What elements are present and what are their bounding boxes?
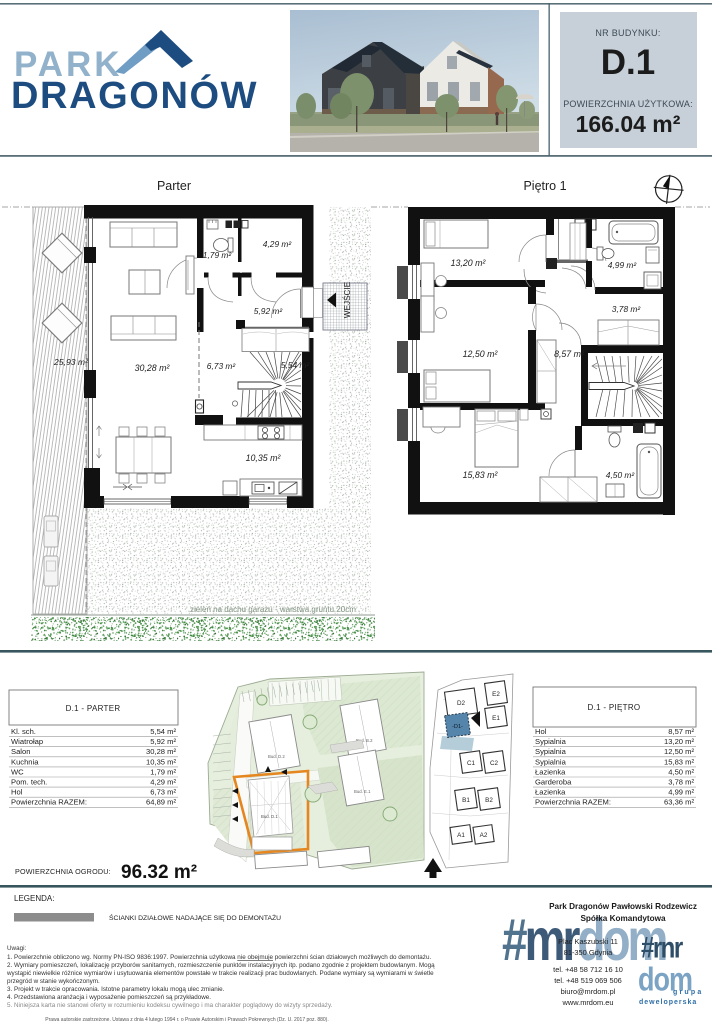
svg-text:www.mrdom.eu: www.mrdom.eu [562, 998, 614, 1007]
svg-text:A1: A1 [457, 832, 465, 839]
svg-text:C1: C1 [467, 760, 476, 767]
svg-text:WC: WC [11, 767, 24, 776]
svg-text:3. Projekt w trakcie opracowan: 3. Projekt w trakcie opracowania. Istotn… [7, 986, 225, 993]
svg-text:Powierzchnia RAZEM:: Powierzchnia RAZEM: [535, 798, 611, 807]
svg-text:LEGENDA:: LEGENDA: [14, 894, 54, 903]
svg-text:4,99 m²: 4,99 m² [668, 788, 694, 797]
svg-text:30,28 m²: 30,28 m² [135, 363, 171, 373]
svg-text:Salon: Salon [11, 747, 30, 756]
svg-text:Kuchnia: Kuchnia [11, 757, 39, 766]
svg-text:Park Dragonów Pawłowski Rodzew: Park Dragonów Pawłowski Rodzewicz [549, 902, 697, 911]
svg-text:12,50 m²: 12,50 m² [463, 349, 499, 359]
svg-text:8,57 m²: 8,57 m² [554, 349, 585, 359]
svg-text:Parter: Parter [157, 179, 191, 193]
svg-text:WEJŚCIE: WEJŚCIE [341, 281, 352, 318]
svg-text:Bud. E.1: Bud. E.1 [354, 789, 371, 794]
svg-text:biuro@mrdom.pl: biuro@mrdom.pl [561, 987, 616, 996]
svg-text:63,36 m²: 63,36 m² [664, 798, 694, 807]
svg-text:5. Niniejsza karta nie stanowi: 5. Niniejsza karta nie stanowi oferty w … [7, 1002, 333, 1009]
svg-text:1,79 m²: 1,79 m² [150, 767, 176, 776]
svg-text:1,79 m²: 1,79 m² [203, 250, 233, 260]
svg-text:1. Powierzchnie obliczono wg.: 1. Powierzchnie obliczono wg. Normy PN-I… [7, 954, 431, 961]
svg-text:POWIERZCHNIA OGRODU:: POWIERZCHNIA OGRODU: [15, 867, 111, 876]
svg-text:Łazienka: Łazienka [535, 767, 566, 776]
svg-text:D.1 - PARTER: D.1 - PARTER [66, 704, 121, 713]
svg-text:deweloperska: deweloperska [639, 999, 697, 1006]
svg-text:5,92 m²: 5,92 m² [254, 306, 284, 316]
svg-text:A2: A2 [480, 832, 488, 839]
svg-text:4,50 m²: 4,50 m² [668, 767, 694, 776]
svg-text:96.32 m²: 96.32 m² [121, 862, 197, 883]
svg-text:81-350 Gdynia: 81-350 Gdynia [564, 948, 613, 957]
svg-text:Pom. tech.: Pom. tech. [11, 778, 47, 787]
svg-text:Hol: Hol [535, 727, 547, 736]
svg-text:10,35 m²: 10,35 m² [146, 757, 176, 766]
svg-text:10,35 m²: 10,35 m² [246, 453, 282, 463]
svg-text:C2: C2 [490, 760, 499, 767]
svg-text:#rnr: #rnr [641, 930, 684, 964]
svg-text:4,50 m²: 4,50 m² [606, 470, 636, 480]
svg-text:Spółka Komandytowa: Spółka Komandytowa [580, 914, 666, 923]
svg-text:B1: B1 [462, 797, 470, 804]
svg-text:Łazienka: Łazienka [535, 788, 566, 797]
svg-text:D2: D2 [457, 700, 466, 707]
svg-text:Bud. D.1: Bud. D.1 [261, 814, 278, 819]
svg-text:D.1 - PIĘTRO: D.1 - PIĘTRO [588, 703, 641, 712]
svg-text:5,92 m²: 5,92 m² [150, 737, 176, 746]
svg-text:12,50 m²: 12,50 m² [664, 747, 694, 756]
svg-text:Bud. D.2: Bud. D.2 [268, 754, 285, 759]
svg-text:4. Przedstawiona aranżacja i w: 4. Przedstawiona aranżacja i wyposażenie… [7, 994, 211, 1001]
svg-text:8,57 m²: 8,57 m² [668, 727, 694, 736]
svg-text:13,20 m²: 13,20 m² [664, 737, 694, 746]
svg-text:wystąpić niewielkie różnice wy: wystąpić niewielkie różnice wymiarów i u… [6, 970, 434, 977]
svg-text:4,29 m²: 4,29 m² [263, 239, 293, 249]
svg-text:2. Wymiary pomieszczeń, lokali: 2. Wymiary pomieszczeń, lokalizację przy… [7, 962, 435, 969]
svg-text:13,20 m²: 13,20 m² [451, 258, 487, 268]
svg-text:D.1: D.1 [601, 43, 655, 82]
svg-text:Sypialnia: Sypialnia [535, 737, 567, 746]
svg-text:Kl. sch.: Kl. sch. [11, 727, 36, 736]
svg-text:166.04 m²: 166.04 m² [576, 111, 681, 137]
svg-text:Plac Kaszubski 11: Plac Kaszubski 11 [558, 937, 618, 946]
svg-text:-D1-: -D1- [452, 724, 463, 730]
svg-text:tel. +48 519 069 506: tel. +48 519 069 506 [554, 976, 622, 985]
svg-text:POWIERZCHNIA UŻYTKOWA:: POWIERZCHNIA UŻYTKOWA: [563, 99, 693, 109]
svg-text:Garderoba: Garderoba [535, 778, 572, 787]
svg-text:6,73 m²: 6,73 m² [150, 788, 176, 797]
svg-text:6,73 m²: 6,73 m² [207, 361, 237, 371]
svg-text:E2: E2 [492, 691, 500, 698]
svg-text:Prawa autorskie zastrzeżone. U: Prawa autorskie zastrzeżone. Ustawa z dn… [45, 1017, 328, 1023]
svg-text:NR BUDYNKU:: NR BUDYNKU: [595, 28, 660, 38]
svg-text:5,54 m²: 5,54 m² [150, 727, 176, 736]
svg-text:E1: E1 [492, 715, 500, 722]
svg-text:Hol: Hol [11, 788, 23, 797]
svg-text:64,89 m²: 64,89 m² [146, 798, 176, 807]
svg-text:4,29 m²: 4,29 m² [150, 778, 176, 787]
svg-text:15,83 m²: 15,83 m² [463, 470, 499, 480]
svg-text:15,83 m²: 15,83 m² [664, 757, 694, 766]
svg-text:grupa: grupa [673, 989, 703, 996]
svg-text:przegród w stanie wykończonym.: przegród w stanie wykończonym. [7, 978, 100, 985]
svg-text:30,28 m²: 30,28 m² [146, 747, 176, 756]
svg-text:5,54 m²: 5,54 m² [281, 360, 311, 370]
svg-text:4,99 m²: 4,99 m² [608, 260, 638, 270]
svg-text:Sypialnia: Sypialnia [535, 757, 567, 766]
svg-text:3,78 m²: 3,78 m² [668, 778, 694, 787]
svg-text:3,78 m²: 3,78 m² [612, 304, 642, 314]
svg-text:Powierzchnia RAZEM:: Powierzchnia RAZEM: [11, 798, 87, 807]
svg-text:Sypialnia: Sypialnia [535, 747, 567, 756]
svg-text:B2: B2 [485, 797, 493, 804]
svg-text:25,93 m²: 25,93 m² [53, 357, 89, 367]
svg-text:Piętro 1: Piętro 1 [523, 179, 566, 193]
svg-text:tel. +48 58 712 16 10: tel. +48 58 712 16 10 [553, 965, 623, 974]
svg-text:Uwagi:: Uwagi: [7, 945, 26, 952]
svg-text:ŚCIANKI DZIAŁOWE NADAJĄCE SIĘ: ŚCIANKI DZIAŁOWE NADAJĄCE SIĘ DO DEMONTA… [109, 913, 281, 922]
svg-text:DRAGONÓW: DRAGONÓW [11, 73, 258, 117]
svg-text:Wiatrołap: Wiatrołap [11, 737, 43, 746]
svg-text:zieleń na dachu garażu - warst: zieleń na dachu garażu - warstwa gruntu … [190, 605, 356, 614]
